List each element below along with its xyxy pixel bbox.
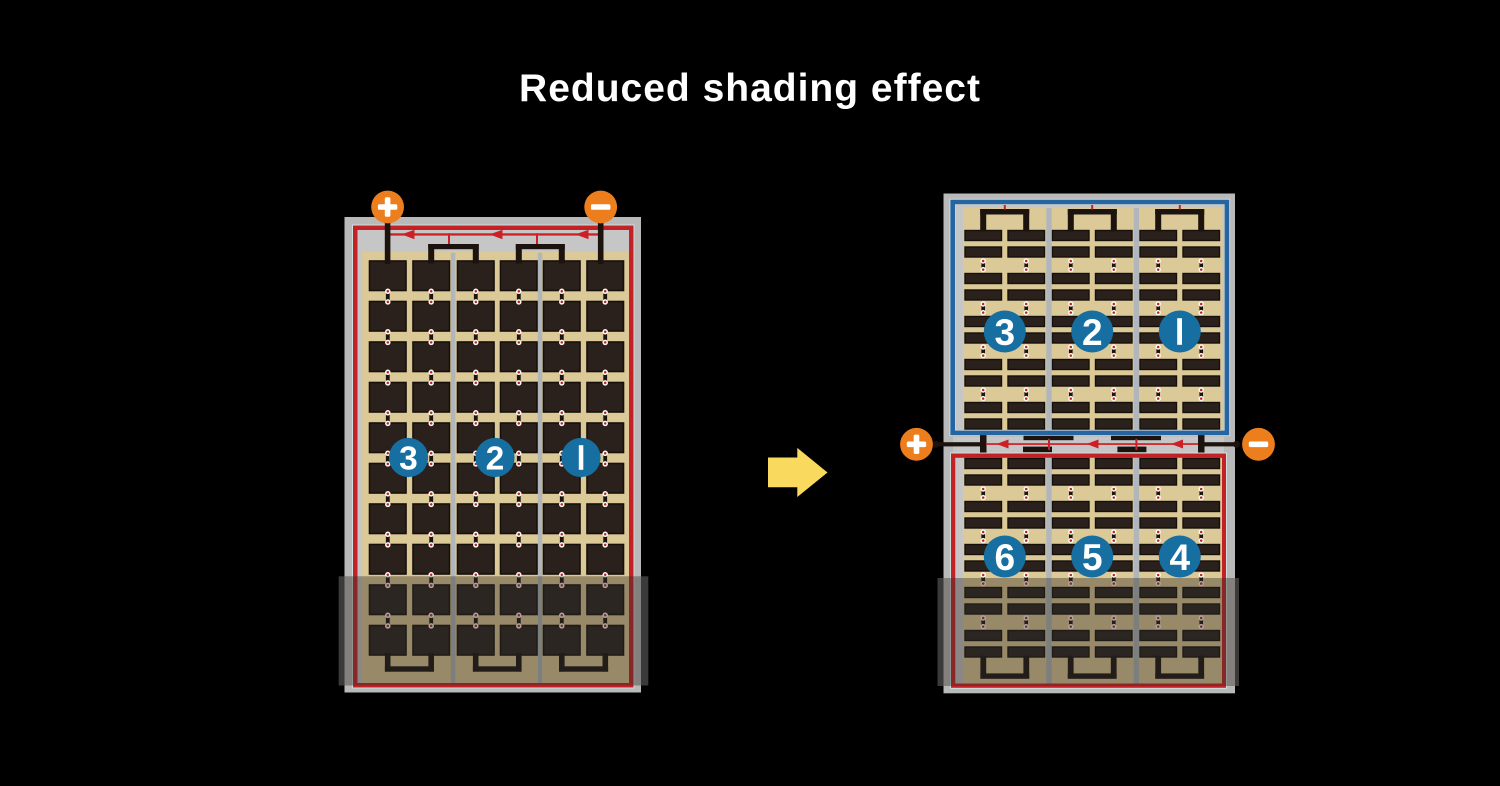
svg-text:6: 6 [994, 537, 1015, 578]
svg-text:2: 2 [486, 441, 505, 478]
svg-text:3: 3 [994, 312, 1015, 353]
svg-text:Reduced shading effect: Reduced shading effect [519, 67, 981, 110]
svg-text:3: 3 [399, 441, 418, 478]
svg-text:5: 5 [1082, 537, 1103, 578]
svg-text:2: 2 [1082, 312, 1103, 353]
svg-text:4: 4 [1169, 537, 1190, 578]
